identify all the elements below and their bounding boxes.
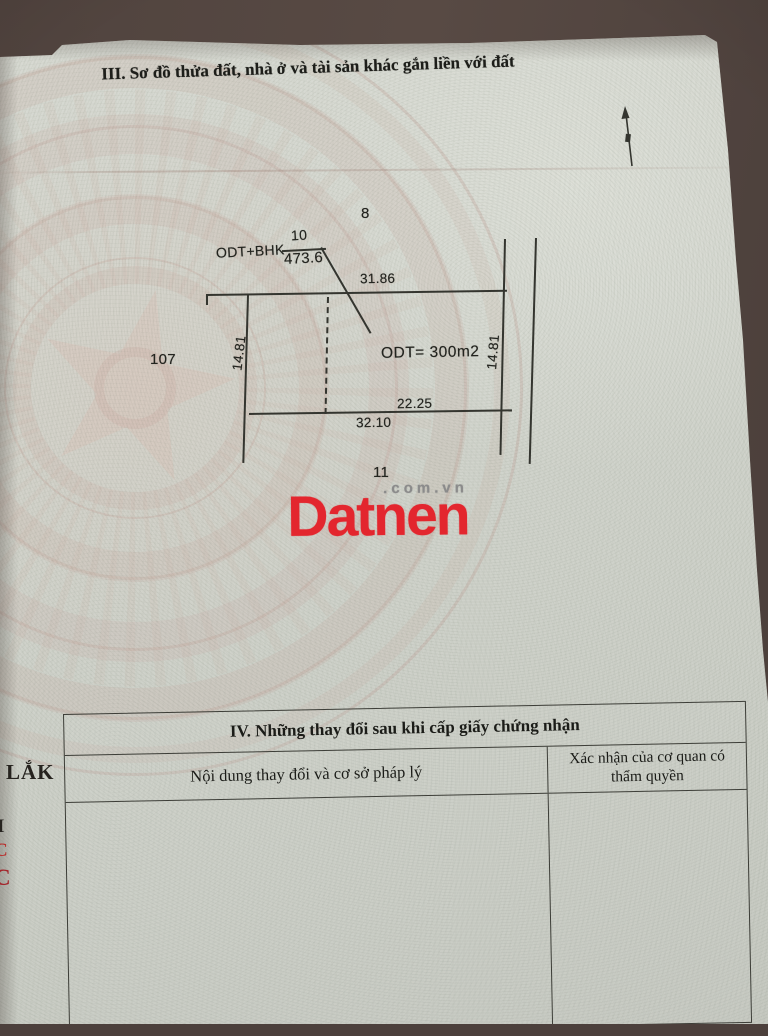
column-header-authority-confirmation: Xác nhận của cơ quan có thẩm quyền — [548, 743, 747, 793]
watermark-brand: Datnen — [287, 487, 469, 546]
section4-table: IV. Những thay đổi sau khi cấp giấy chứn… — [63, 701, 752, 1036]
dimension-top-label: 31.86 — [360, 271, 396, 287]
land-use-code-label: ODT+BHK — [216, 241, 285, 261]
empty-cell-confirmation — [549, 790, 751, 1026]
emblem-ring — [0, 54, 469, 722]
section3-title: III. Sơ đồ thửa đất, nhà ở và tài sản kh… — [92, 51, 524, 85]
emblem-star — [16, 269, 253, 506]
plot-top-boundary-line — [206, 290, 507, 296]
parcel-area-label: 473.6 — [284, 249, 324, 268]
section4-table-empty-body — [66, 790, 751, 1035]
adjacent-parcel-top-label: 8 — [361, 205, 370, 222]
boundary-tick — [206, 294, 208, 305]
inner-area-label: ODT= 300m2 — [381, 343, 480, 363]
dimension-bottom-outer-label: 32.10 — [356, 415, 392, 431]
adjacent-parcel-left-label: 107 — [150, 351, 176, 368]
emblem-ring — [13, 266, 257, 510]
adjacent-parcel-bottom-label: 11 — [373, 464, 389, 481]
column-header-content-legal-basis: Nội dung thay đổi và cơ sở pháp lý — [65, 747, 549, 802]
emblem-ring — [4, 257, 266, 519]
road-edge-line — [529, 238, 537, 464]
north-arrow-icon — [612, 104, 642, 174]
plot-left-boundary-line — [242, 295, 249, 463]
edge-fragment-i: I — [0, 816, 4, 838]
emblem-ring — [0, 0, 523, 776]
edge-fragment-lak: LẮK — [6, 760, 55, 785]
emblem-ring — [0, 114, 409, 662]
certificate-page: III. Sơ đồ thửa đất, nhà ở và tài sản kh… — [0, 0, 768, 1024]
paper-crease — [0, 166, 768, 173]
edge-fragment-c-red: C — [0, 840, 8, 862]
edge-fragment-c-red-bold: C — [0, 865, 11, 891]
dimension-bottom-inner-label: 22.25 — [397, 396, 433, 412]
plot-divider-dashed-line — [325, 297, 329, 414]
empty-cell-content — [66, 794, 554, 1035]
emblem-ring — [0, 125, 398, 651]
emblem-ring — [0, 56, 467, 720]
parcel-number-label: 10 — [291, 227, 308, 244]
emblem-spokes — [0, 88, 435, 688]
dimension-right-label: 14.81 — [484, 334, 502, 370]
emblem-ring — [0, 13, 510, 763]
watermark-logo: .com.vn Datnen — [287, 471, 497, 473]
